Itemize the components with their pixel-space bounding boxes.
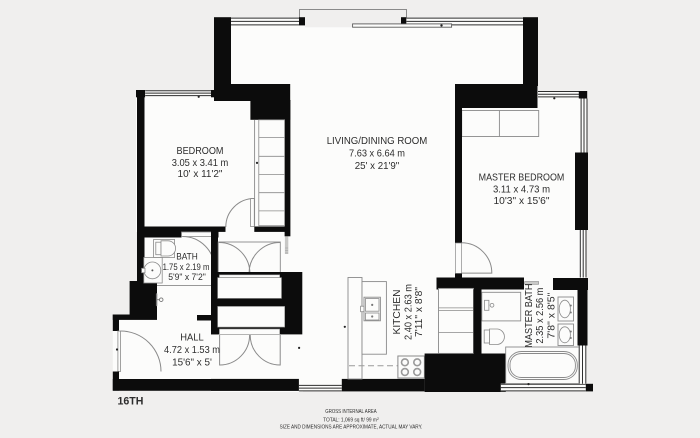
svg-text:7.63 x 6.64 m: 7.63 x 6.64 m <box>349 148 405 159</box>
svg-text:15'6" x 5': 15'6" x 5' <box>172 358 212 369</box>
svg-text:MASTER BATH: MASTER BATH <box>524 284 535 348</box>
svg-text:BEDROOM: BEDROOM <box>177 146 224 157</box>
svg-text:2.40 x 2.63 m: 2.40 x 2.63 m <box>404 284 415 340</box>
svg-text:2.35 x 2.56 m: 2.35 x 2.56 m <box>535 288 546 344</box>
svg-text:TOTAL: 1,069 sq ft/ 99 m2: TOTAL: 1,069 sq ft/ 99 m2 <box>323 416 379 424</box>
svg-text:4.72 x 1.53 m: 4.72 x 1.53 m <box>164 345 220 356</box>
svg-text:25' x 21'9": 25' x 21'9" <box>355 161 400 172</box>
svg-text:1.75 x 2.19 m: 1.75 x 2.19 m <box>163 262 210 272</box>
svg-text:BATH: BATH <box>176 251 198 261</box>
svg-text:5'9" x 7'2": 5'9" x 7'2" <box>168 272 206 282</box>
svg-text:7'8" x 8'5": 7'8" x 8'5" <box>547 292 558 339</box>
svg-text:LIVING/DINING ROOM: LIVING/DINING ROOM <box>327 136 428 147</box>
svg-text:3.11 x 4.73 m: 3.11 x 4.73 m <box>493 185 550 196</box>
svg-text:16TH: 16TH <box>118 396 144 408</box>
svg-text:HALL: HALL <box>180 332 204 343</box>
svg-text:SIZE AND DIMENSIONS ARE APPROX: SIZE AND DIMENSIONS ARE APPROXIMATE, ACT… <box>280 425 423 431</box>
svg-text:GROSS INTERNAL AREA: GROSS INTERNAL AREA <box>325 409 377 415</box>
svg-text:7'11" x 8'8": 7'11" x 8'8" <box>414 286 425 337</box>
svg-text:3.05 x 3.41 m: 3.05 x 3.41 m <box>172 158 229 169</box>
svg-text:10' x 11'2": 10' x 11'2" <box>178 169 223 180</box>
svg-text:KITCHEN: KITCHEN <box>392 290 403 335</box>
svg-text:MASTER BEDROOM: MASTER BEDROOM <box>479 173 565 184</box>
svg-text:10'3" x 15'6": 10'3" x 15'6" <box>494 196 550 207</box>
